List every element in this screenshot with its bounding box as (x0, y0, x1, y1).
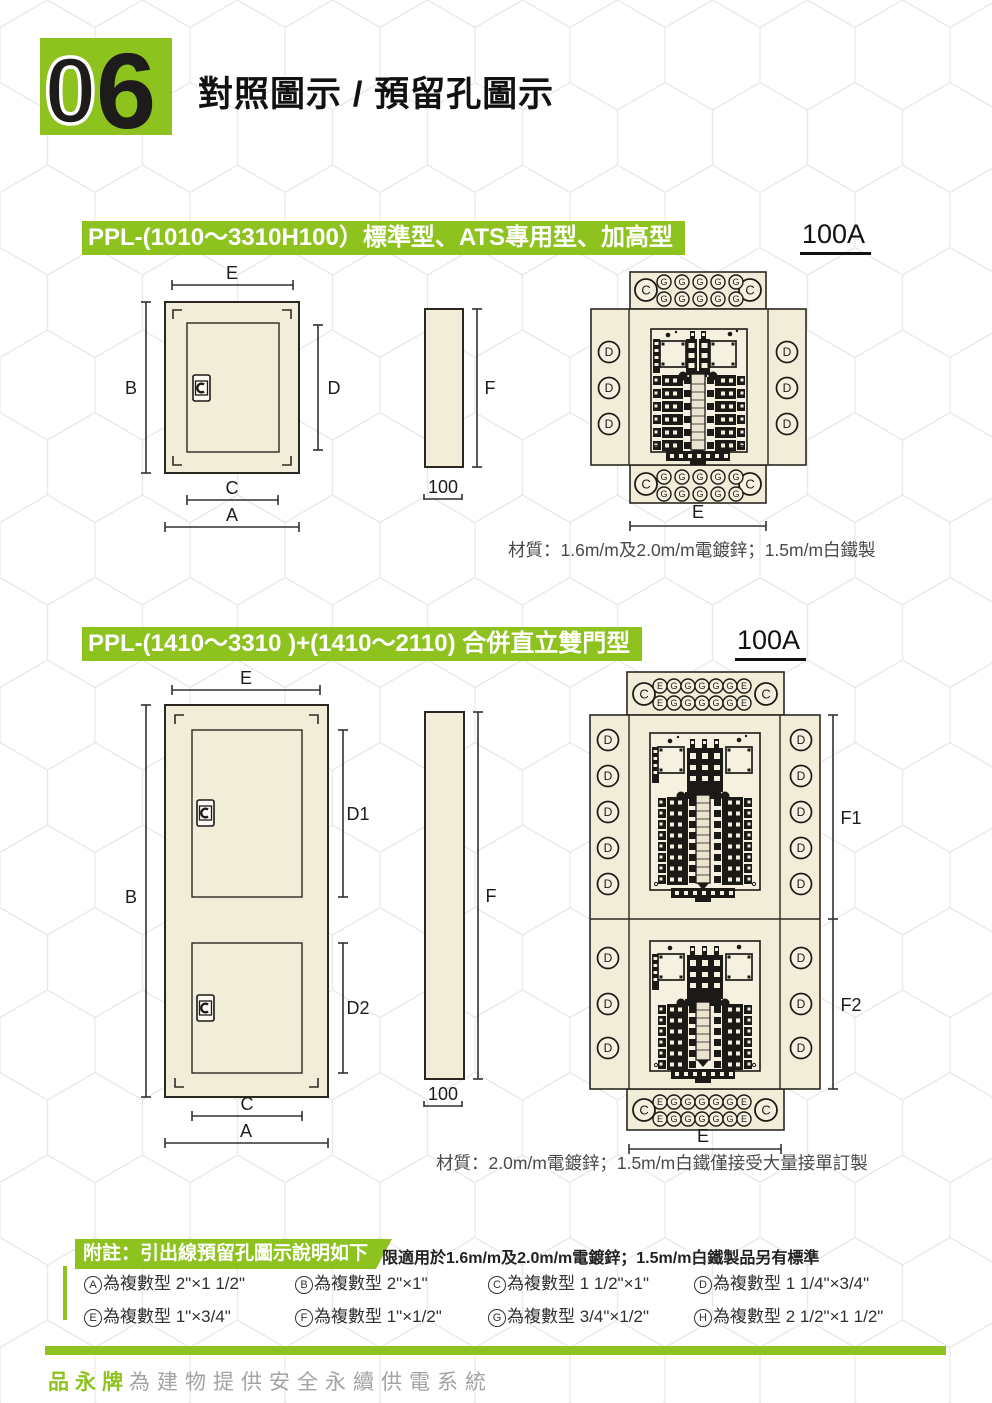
upper-breaker-board (650, 733, 760, 902)
main-breaker (687, 946, 723, 999)
meter-base (658, 954, 684, 980)
legend-item: H為複數型 2 1/2"×1 1/2" (694, 1302, 944, 1327)
badge-digit-zero: 0 (44, 38, 97, 135)
section2-amp-rating: 100A (735, 625, 806, 661)
meter-base (726, 747, 752, 773)
dim-label-E: E (240, 668, 252, 688)
busbar (696, 795, 710, 883)
dim-label-depth: 100 (428, 1084, 458, 1104)
badge-digits: 0 6 (40, 38, 172, 135)
legend-desc: 為複數型 1 1/2"×1" (507, 1274, 649, 1293)
dim-label-D1: D1 (346, 804, 369, 824)
legend-key: F (295, 1309, 313, 1327)
notes-tag: 附註：引出線預留孔圖示說明如下 (75, 1239, 392, 1269)
section2-side-view: F 100 (405, 698, 505, 1122)
dim-label-E: E (226, 263, 238, 283)
section2-title-bar: PPL-(1410～3310 )+(1410～2110) 合併直立雙門型 (82, 627, 642, 661)
section2-material-note: 材質：2.0m/m電鍍鋅；1.5m/m白鐵僅接受大量接單訂製 (436, 1150, 868, 1175)
panel-side (425, 712, 464, 1079)
dim-D (313, 325, 323, 450)
dim-label-depth: 100 (428, 477, 458, 497)
dim-label-A: A (226, 505, 238, 525)
legend-desc: 為複數型 2"×1 1/2" (103, 1274, 245, 1293)
legend-desc: 為複數型 3/4"×1/2" (507, 1307, 649, 1326)
meter-base (710, 341, 736, 367)
legend-key: C (488, 1276, 506, 1294)
dim-F (472, 309, 482, 467)
page-number-badge: 0 6 (40, 38, 172, 135)
notes-restriction: 限適用於1.6m/m及2.0m/m電鍍鋅；1.5m/m白鐵製品另有標準 (382, 1244, 819, 1268)
legend-desc: 為複數型 1"×1/2" (314, 1307, 442, 1326)
meter-base (726, 954, 752, 980)
legend-item: F為複數型 1"×1/2" (295, 1302, 488, 1327)
legend-desc: 為複數型 1"×3/4" (103, 1307, 231, 1326)
legend-item: D為複數型 1 1/4"×3/4" (694, 1269, 944, 1294)
footer-accent-bar (45, 1346, 946, 1355)
dim-F1 (828, 715, 838, 919)
dim-label-F: F (485, 378, 496, 398)
section1-material-note: 材質：1.6m/m及2.0m/m電鍍鋅；1.5m/m白鐵製 (508, 537, 876, 562)
section1-front-view: E B D C A (120, 262, 350, 540)
dim-label-F2: F2 (840, 995, 861, 1015)
dim-label-A: A (240, 1121, 252, 1141)
legend-key: H (694, 1309, 712, 1327)
page-title: 對照圖示 / 預留孔圖示 (198, 66, 554, 117)
legend-item: C為複數型 1 1/2"×1" (488, 1269, 694, 1294)
section2-back-view: F1 F2 E (580, 666, 870, 1160)
meter-base (660, 341, 686, 367)
dim-F2 (828, 919, 838, 1089)
hole-type-legend: A為複數型 2"×1 1/2" B為複數型 2"×1" C為複數型 1 1/2"… (84, 1269, 964, 1327)
lower-breaker-board (650, 941, 760, 1083)
dim-label-B: B (125, 378, 137, 398)
legend-key: B (295, 1276, 313, 1294)
busbar (696, 1002, 710, 1060)
badge-digit-six: 6 (96, 38, 156, 135)
legend-desc: 為複數型 2 1/2"×1 1/2" (713, 1307, 883, 1326)
door-lock (193, 375, 210, 401)
section1-amp-rating: 100A (800, 219, 871, 255)
dim-E-back (630, 521, 766, 531)
breaker-board (651, 329, 747, 465)
legend-item: B為複數型 2"×1" (295, 1269, 488, 1294)
dim-label-D2: D2 (346, 998, 369, 1018)
section1-back-view: E (585, 266, 830, 538)
brand-tagline: 為建物提供安全永續供電系統 (129, 1371, 493, 1394)
section1-side-view: F 100 (405, 300, 505, 512)
dim-label-C: C (226, 478, 239, 498)
legend-key: G (488, 1309, 506, 1327)
dim-label-D: D (328, 378, 341, 398)
dim-label-C: C (241, 1094, 254, 1114)
door-lock (197, 995, 214, 1021)
legend-item: E為複數型 1"×3/4" (84, 1302, 295, 1327)
dim-label-B: B (125, 887, 137, 907)
dim-label-F1: F1 (840, 808, 861, 828)
dim-label-F: F (486, 886, 497, 906)
brand-name: 品永牌 (48, 1371, 129, 1394)
section2-front-view: E B D1 D2 C A (118, 668, 373, 1150)
notes-left-accent-bar (63, 1266, 67, 1320)
dim-B (141, 705, 151, 1097)
section1-title-bar: PPL-(1010～3310H100）標準型、ATS專用型、加高型 (82, 221, 685, 255)
page: C D G E (0, 0, 992, 1403)
legend-desc: 為複數型 2"×1" (314, 1274, 428, 1293)
legend-desc: 為複數型 1 1/4"×3/4" (713, 1274, 869, 1293)
dim-label-E: E (692, 502, 704, 522)
door-lock (197, 800, 214, 826)
busbar (691, 374, 705, 450)
panel-side (425, 309, 463, 467)
legend-item: A為複數型 2"×1 1/2" (84, 1269, 295, 1294)
footer-text: 品永牌為建物提供安全永續供電系統 (48, 1366, 493, 1396)
legend-key: D (694, 1276, 712, 1294)
dim-F (473, 712, 483, 1079)
main-breaker (687, 739, 723, 792)
dim-label-E: E (697, 1126, 709, 1146)
meter-base (658, 747, 684, 773)
legend-item: G為複數型 3/4"×1/2" (488, 1302, 694, 1327)
legend-key: A (84, 1276, 102, 1294)
dim-B (141, 302, 151, 473)
legend-key: E (84, 1309, 102, 1327)
